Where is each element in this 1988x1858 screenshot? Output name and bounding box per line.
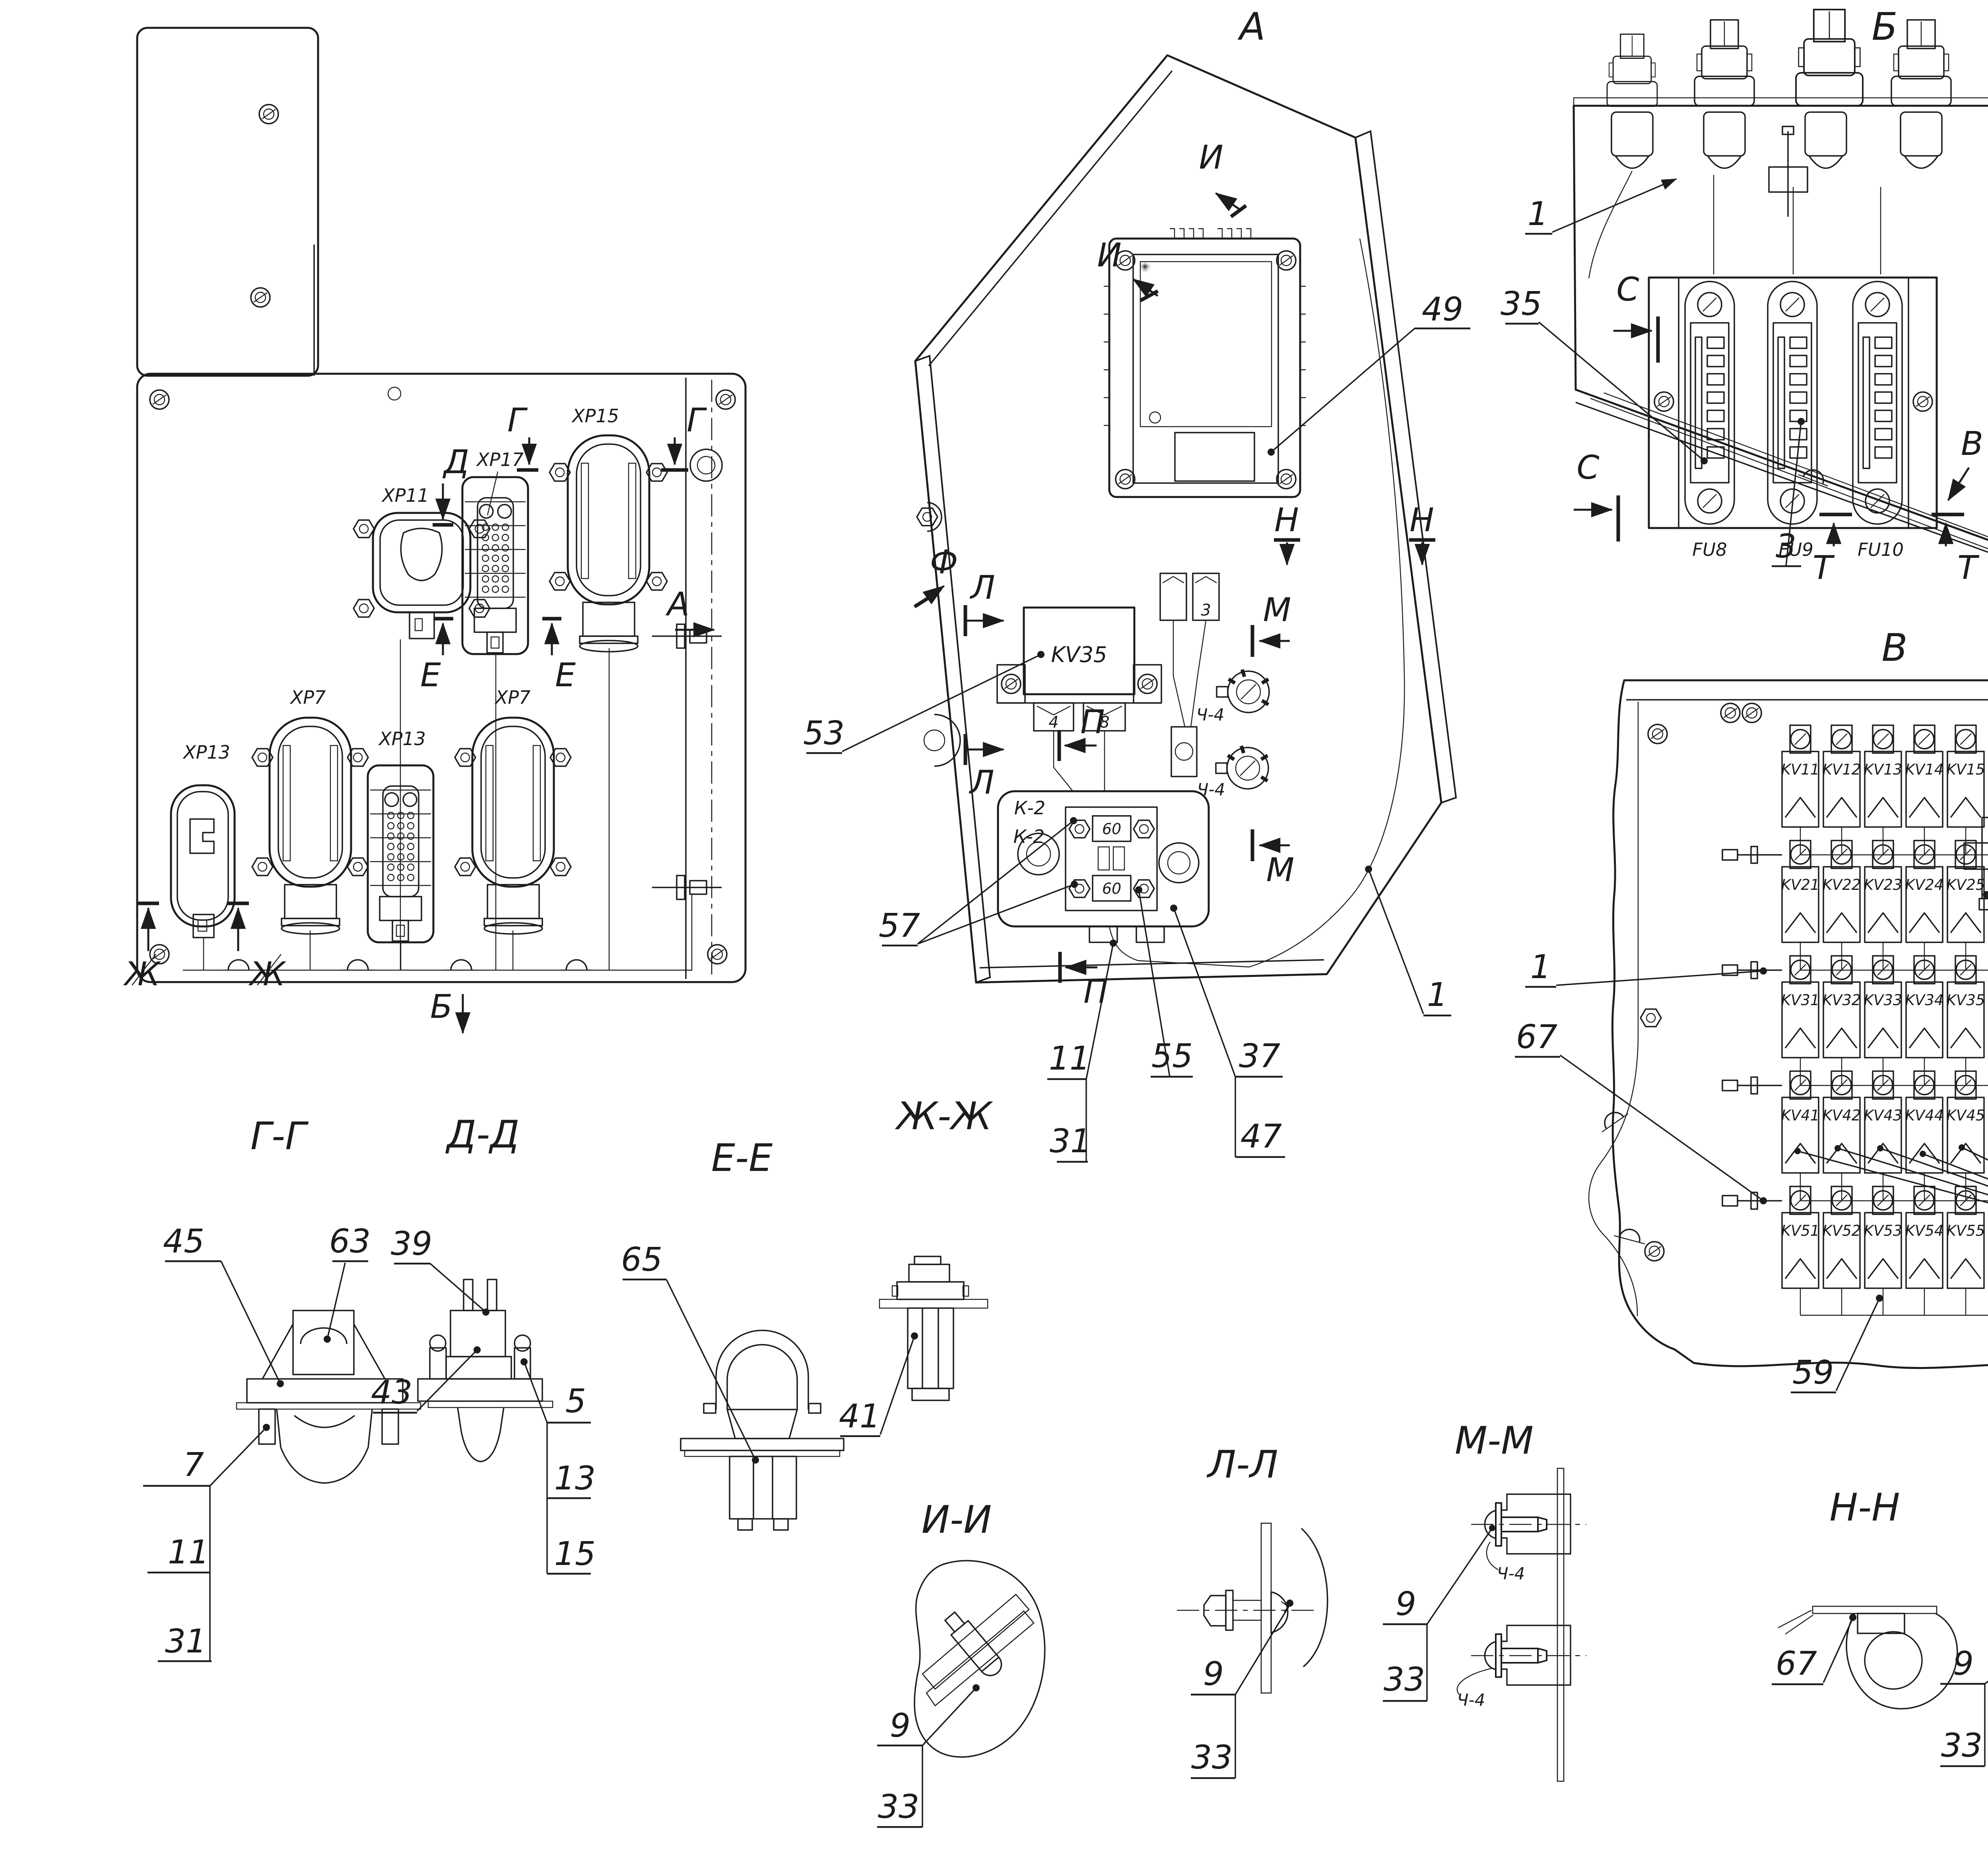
relay-kv52: KV52 bbox=[1823, 1222, 1861, 1239]
callout-1a: 1 bbox=[1427, 976, 1448, 1014]
label-kv35: KV35 bbox=[1051, 642, 1107, 667]
callout-49: 49 bbox=[1422, 291, 1463, 328]
rosette-ch4-a bbox=[1217, 670, 1269, 713]
mark-p2: П bbox=[1083, 973, 1108, 1011]
mark-i2: И bbox=[1097, 237, 1121, 274]
view-b: Б FU8 FU9 FU10 1 35 3 bbox=[1501, 5, 1988, 587]
mark-s1: С bbox=[1616, 271, 1639, 309]
label-pin4: 4 bbox=[1048, 713, 1058, 732]
relay-kv45: KV45 bbox=[1947, 1107, 1985, 1124]
relay-kv24: KV24 bbox=[1905, 876, 1944, 893]
mark-n1: Н bbox=[1274, 501, 1299, 539]
mark-f: Ф bbox=[930, 544, 958, 581]
relay-kv14: KV14 bbox=[1905, 761, 1944, 778]
b-connector-1 bbox=[1607, 34, 1657, 106]
relay-kv23: KV23 bbox=[1864, 876, 1903, 893]
fuse-fu10 bbox=[1853, 282, 1902, 524]
view-v: В KV11 KV12 KV13 KV14 KV15 KV16 KV21 KV2… bbox=[1515, 626, 1988, 1392]
b-connector-2 bbox=[1695, 20, 1754, 106]
b-connector-3 bbox=[1796, 10, 1863, 106]
mark-n2: Н bbox=[1409, 501, 1434, 539]
callout-47: 47 bbox=[1241, 1118, 1282, 1155]
connector-xp11 bbox=[353, 513, 490, 639]
screw-hole bbox=[708, 945, 727, 964]
callout-31: 31 bbox=[1050, 1122, 1091, 1160]
detail-ee-title: Е-Е bbox=[711, 1136, 773, 1180]
detail-zh: Ж-Ж 41 bbox=[839, 1095, 993, 1436]
ecu-module bbox=[1104, 229, 1306, 497]
mark-e2: Е bbox=[555, 656, 576, 694]
detail-pp-c33: 33 bbox=[1941, 1727, 1982, 1765]
callout-57: 57 bbox=[879, 907, 920, 945]
detail-mm: М-М Ч-4 Ч-4 9 33 bbox=[1383, 1419, 1586, 1781]
detail-gg-c63: 63 bbox=[329, 1223, 371, 1260]
detail-ll-c9: 9 bbox=[1203, 1655, 1224, 1693]
label-xp13b: ХР13 bbox=[378, 728, 426, 749]
relay-kv15: KV15 bbox=[1947, 761, 1985, 778]
detail-zh-title: Ж-Ж bbox=[895, 1095, 994, 1138]
detail-gg-c31: 31 bbox=[165, 1623, 206, 1660]
harness-a2 bbox=[1109, 926, 1249, 967]
detail-pp: П-П 9 33 bbox=[1940, 1491, 1988, 1786]
mark-t1: Т bbox=[1813, 549, 1835, 587]
callout-59: 59 bbox=[1792, 1354, 1834, 1392]
relay-kv44: KV44 bbox=[1905, 1107, 1944, 1124]
callout-b1: 1 bbox=[1528, 195, 1548, 233]
detail-dd-c13: 13 bbox=[554, 1460, 596, 1497]
relay-kv51: KV51 bbox=[1781, 1222, 1820, 1239]
callout-11: 11 bbox=[1049, 1040, 1090, 1078]
label-k2b: К-2 bbox=[1013, 826, 1045, 847]
connector-xp13a bbox=[171, 785, 235, 938]
label-ch4b: Ч-4 bbox=[1197, 780, 1225, 799]
relay-kv43: KV43 bbox=[1864, 1107, 1903, 1124]
b-right-hardware bbox=[1590, 201, 1988, 564]
label-xp13a: ХР13 bbox=[182, 742, 230, 763]
connector-xp17 bbox=[462, 477, 528, 654]
label-k2a: К-2 bbox=[1014, 797, 1046, 819]
detail-mm-c33: 33 bbox=[1384, 1661, 1425, 1699]
mark-g1: Г bbox=[507, 402, 528, 439]
label-xp7b: ХР7 bbox=[495, 687, 531, 708]
connector-xp15 bbox=[568, 435, 649, 652]
relay-kv34: KV34 bbox=[1905, 992, 1944, 1009]
detail-dd-c39: 39 bbox=[391, 1225, 432, 1263]
mark-t2: Т bbox=[1957, 549, 1980, 587]
mark-e1: Е bbox=[420, 656, 441, 694]
mm-bolt-lower bbox=[1471, 1625, 1586, 1685]
relay-kv35r: KV35 bbox=[1947, 992, 1985, 1009]
relay-kv55: KV55 bbox=[1947, 1222, 1985, 1239]
detail-ii-title: И-И bbox=[922, 1498, 992, 1542]
detail-dd-c15: 15 bbox=[554, 1535, 596, 1573]
label-60b: 60 bbox=[1102, 880, 1121, 897]
detail-pp-c9: 9 bbox=[1953, 1645, 1974, 1683]
mark-zh1: Ж bbox=[123, 955, 161, 993]
callouts-view-a: 49 53 57 11 31 55 37 47 1 bbox=[803, 291, 1470, 1162]
detail-nn-c67: 67 bbox=[1776, 1645, 1817, 1683]
detail-dd-c43: 43 bbox=[371, 1374, 412, 1411]
detail-nn: Н-Н 67 bbox=[1772, 1486, 1957, 1709]
relay-kv13: KV13 bbox=[1864, 761, 1903, 778]
relay-kv53: KV53 bbox=[1864, 1222, 1903, 1239]
mark-zh2: Ж bbox=[248, 955, 287, 993]
label-xp11: ХР11 bbox=[381, 485, 429, 506]
mark-s2: С bbox=[1576, 449, 1599, 487]
detail-ll: Л-Л 9 33 bbox=[1177, 1443, 1328, 1778]
label-ch4a: Ч-4 bbox=[1196, 705, 1225, 724]
screw-hole bbox=[259, 105, 278, 124]
detail-gg-c11: 11 bbox=[168, 1534, 209, 1571]
relay-kv11: KV11 bbox=[1781, 761, 1820, 778]
mark-v: В bbox=[1961, 425, 1983, 463]
main-panel-view: ХР11 ХР17 ХР15 ХР13 ХР7 ХР13 ХР7 Г Г Д bbox=[123, 28, 745, 1033]
callout-53: 53 bbox=[803, 714, 845, 752]
mark-g2: Г bbox=[687, 402, 707, 439]
mark-l1: Л bbox=[969, 569, 995, 607]
relay-kv42: KV42 bbox=[1823, 1107, 1861, 1124]
detail-ii-c33: 33 bbox=[878, 1788, 919, 1826]
b-connector-bodies-inside bbox=[1589, 112, 1942, 278]
callout-67b: 67 bbox=[1516, 1018, 1557, 1056]
relay-kv25: KV25 bbox=[1947, 876, 1985, 893]
detail-ee-c65: 65 bbox=[621, 1241, 662, 1279]
label-aux3: 3 bbox=[1201, 601, 1211, 619]
label-mm-ch4b: Ч-4 bbox=[1457, 1690, 1485, 1710]
label-60a: 60 bbox=[1102, 820, 1121, 838]
fuse-block bbox=[1649, 278, 1937, 528]
detail-ii: И-И 9 33 bbox=[877, 1498, 1045, 1827]
mark-m2: М bbox=[1266, 851, 1295, 889]
fuse-fu8 bbox=[1685, 282, 1734, 524]
relay-kv54: KV54 bbox=[1905, 1222, 1944, 1239]
callout-b35: 35 bbox=[1501, 285, 1542, 323]
assembly-drawing: ХР11 ХР17 ХР15 ХР13 ХР7 ХР13 ХР7 Г Г Д bbox=[0, 0, 1988, 1858]
detail-gg-c45: 45 bbox=[163, 1223, 204, 1260]
detail-mm-c9: 9 bbox=[1396, 1585, 1416, 1623]
view-b-title: Б bbox=[1872, 5, 1897, 49]
label-xp7a: ХР7 bbox=[290, 687, 326, 708]
detail-gg-title: Г-Г bbox=[250, 1114, 309, 1158]
detail-ii-c9: 9 bbox=[890, 1707, 911, 1745]
mark-m1: М bbox=[1263, 591, 1291, 629]
relay-kv22: KV22 bbox=[1823, 876, 1861, 893]
relay-kv33: KV33 bbox=[1864, 992, 1903, 1009]
detail-dd: Д-Д 39 43 5 13 15 bbox=[371, 1113, 596, 1574]
label-fu10: FU10 bbox=[1858, 539, 1904, 560]
detail-zh-c41: 41 bbox=[839, 1398, 880, 1435]
kv35-pin-boxes bbox=[1034, 703, 1125, 792]
label-xp17: ХР17 bbox=[476, 449, 524, 470]
relay-kv32: KV32 bbox=[1823, 992, 1861, 1009]
label-fu8: FU8 bbox=[1692, 539, 1727, 560]
relay-kv41: KV41 bbox=[1781, 1107, 1820, 1124]
callout-37: 37 bbox=[1239, 1037, 1280, 1075]
b-mount-bolts bbox=[1769, 126, 1988, 218]
screw-hole bbox=[150, 390, 169, 409]
label-mm-ch4a: Ч-4 bbox=[1497, 1564, 1525, 1583]
screw-hole bbox=[716, 390, 735, 409]
view-a-title: А bbox=[1237, 5, 1266, 49]
drawing-sheet: ХР11 ХР17 ХР15 ХР13 ХР7 ХР13 ХР7 Г Г Д bbox=[0, 0, 1988, 1858]
mark-l2: Л bbox=[969, 764, 994, 802]
callouts-view-b: 1 35 3 bbox=[1501, 179, 1805, 566]
view-v-title: В bbox=[1881, 626, 1907, 670]
mark-p1: П bbox=[1080, 703, 1105, 741]
label-xp15: ХР15 bbox=[571, 405, 619, 427]
detail-ll-c33: 33 bbox=[1191, 1739, 1233, 1776]
relay-kv21: KV21 bbox=[1781, 876, 1820, 893]
detail-ll-title: Л-Л bbox=[1206, 1443, 1278, 1487]
mark-a: А bbox=[665, 586, 689, 623]
detail-nn-title: Н-Н bbox=[1829, 1486, 1900, 1530]
view-a: А KV35 4 8 3 Ч-4 Ч-4 bbox=[803, 5, 1470, 1162]
callout-55: 55 bbox=[1151, 1037, 1193, 1075]
mark-b: Б bbox=[430, 988, 452, 1026]
callouts-view-v: 34 67 1 67 59 60 bbox=[1515, 692, 1988, 1392]
b-connector-4 bbox=[1891, 20, 1951, 106]
detail-dd-c5: 5 bbox=[565, 1382, 586, 1420]
callout-v1: 1 bbox=[1530, 948, 1551, 986]
detail-gg-c7: 7 bbox=[183, 1446, 204, 1484]
detail-ee: Е-Е 65 bbox=[621, 1136, 844, 1530]
screw-hole bbox=[251, 288, 270, 307]
mark-d: Д bbox=[443, 443, 469, 481]
mark-i1: И bbox=[1199, 139, 1223, 177]
relay-kv12: KV12 bbox=[1823, 761, 1861, 778]
detail-mm-title: М-М bbox=[1455, 1419, 1534, 1463]
connector-xp7b bbox=[472, 718, 554, 934]
connector-xp7a bbox=[270, 718, 351, 934]
relay-kv31: KV31 bbox=[1781, 992, 1820, 1009]
detail-dd-title: Д-Д bbox=[445, 1113, 520, 1157]
